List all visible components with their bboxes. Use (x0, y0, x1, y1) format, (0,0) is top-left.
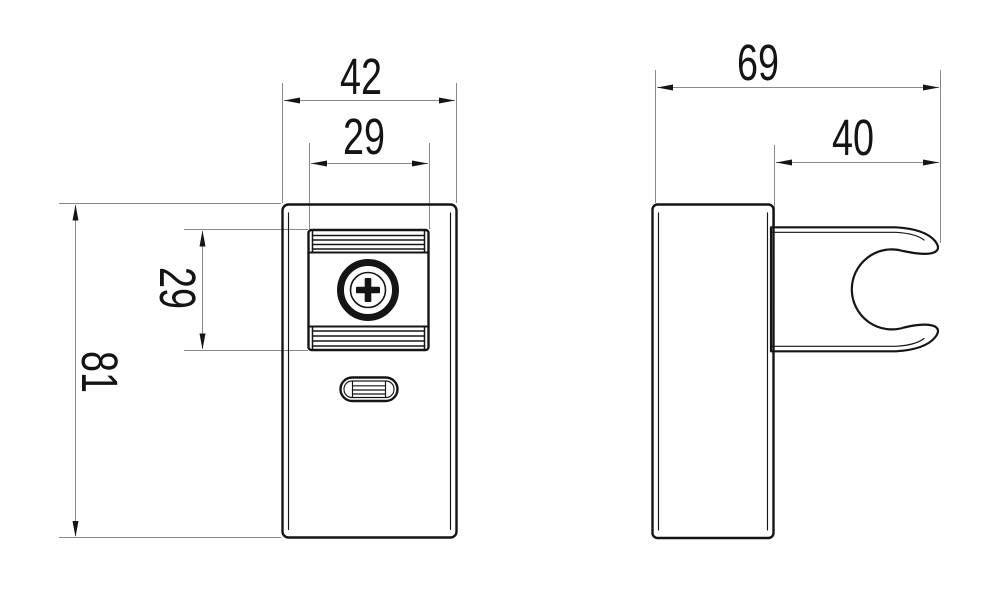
holder-clip (771, 227, 938, 351)
dim-label-side-depth: 69 (737, 34, 779, 91)
base-fills (283, 205, 774, 539)
dim-label-front-plate-width: 29 (343, 108, 385, 165)
technical-drawing-page: 42 29 69 40 81 (0, 0, 1000, 599)
technical-drawing: 42 29 69 40 81 (0, 0, 1000, 599)
dim-label-front-height: 81 (71, 351, 128, 393)
dim-front-height: 81 (59, 204, 281, 538)
dim-label-front-plate-height: 29 (149, 267, 206, 309)
dim-label-side-clip-depth: 40 (832, 109, 874, 166)
screw-head (341, 263, 396, 318)
dim-label-front-width: 42 (340, 48, 382, 105)
dim-side-clip-depth: 40 (775, 109, 940, 226)
